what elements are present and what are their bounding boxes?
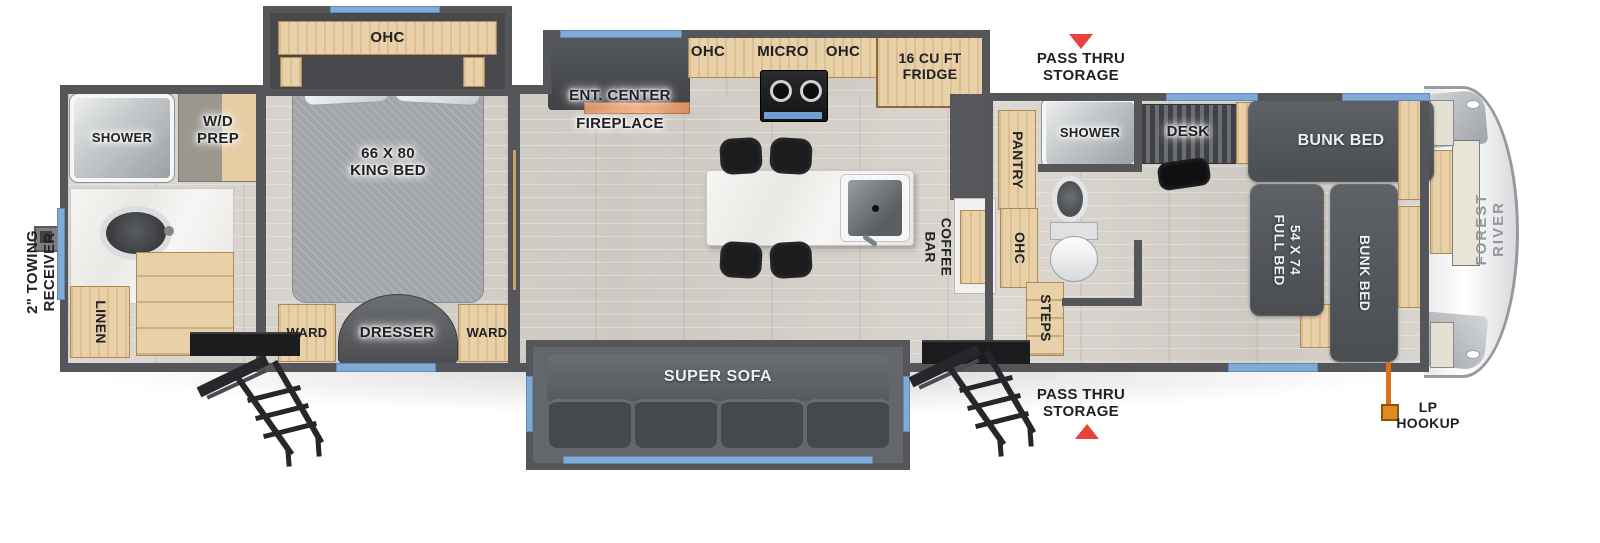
mid-bath-wall-3 [1134, 240, 1142, 304]
wall-kitchen-left [543, 30, 551, 94]
brand-label: FOREST RIVER [1474, 175, 1508, 284]
mid-ohc-label: OHC [1011, 232, 1027, 264]
king-bed-slide: OHC [263, 6, 512, 96]
pantry-label: PANTRY [1009, 131, 1025, 189]
ward-left-label: WARD [278, 304, 336, 362]
pass-thru-storage-top-label: PASS THRU STORAGE [1018, 50, 1144, 86]
bunk-window-1 [1166, 93, 1258, 101]
fridge-label: 16 CU FT FRIDGE [876, 38, 984, 96]
interior-steps-label: STEPS [1037, 294, 1053, 341]
sofa-seat-2 [635, 399, 717, 448]
wall-living-front [985, 93, 993, 363]
ohc-left-label: OHC [686, 44, 730, 60]
sofa-slide-window-bottom [563, 456, 873, 464]
full-bed-label: 54 X 74 FULL BED [1271, 214, 1302, 285]
lp-hookup-label: LP HOOKUP [1392, 398, 1464, 434]
bedroom-ohc-label: OHC [278, 21, 497, 55]
toilet-bowl [1050, 236, 1098, 282]
stool-1 [719, 137, 763, 175]
stool-3 [719, 241, 763, 279]
stove-burner-left [770, 80, 792, 102]
ent-center-window [560, 30, 682, 38]
rv-floorplan: FOREST RIVER SHOWER W/D PREP LINEN OHC 6… [0, 0, 1600, 543]
lp-line [1386, 362, 1391, 408]
bunk-bed-right-label: BUNK BED [1356, 235, 1372, 311]
stove-burner-right [800, 80, 822, 102]
ohc-right-label: OHC [821, 44, 865, 60]
king-bed-label: 66 X 80 KING BED [292, 142, 484, 184]
sofa-seat-4 [807, 399, 889, 448]
sofa-seat-3 [721, 399, 803, 448]
bedroom-door-track [513, 150, 516, 290]
pass-thru-storage-bottom-label: PASS THRU STORAGE [1018, 386, 1144, 422]
towing-receiver-label: 2" TOWING RECEIVER [25, 230, 59, 314]
bedroom-bottom-window [336, 363, 436, 372]
bunk-bed-top-label: BUNK BED [1248, 100, 1434, 182]
stool-4 [769, 241, 813, 279]
micro-label: MICRO [756, 44, 810, 60]
slide-shelf-left [280, 57, 302, 87]
stove-front-trim [764, 112, 822, 119]
entry-steps-left [196, 356, 336, 468]
cap-bolt-bottom [1466, 350, 1480, 359]
super-sofa-label: SUPER SOFA [547, 365, 889, 389]
sofa-slide-window-left [526, 376, 533, 432]
mid-bath-wall-4 [1062, 298, 1142, 306]
front-closet-panel-bottom [1430, 322, 1454, 368]
mid-bath-sink [1052, 176, 1088, 222]
bath-faucet [164, 226, 174, 236]
island-sink-drain [872, 205, 879, 212]
wd-prep-label: W/D PREP [178, 96, 258, 166]
ent-center-label: ENT. CENTER [544, 88, 696, 104]
sofa-slide: SUPER SOFA [526, 340, 910, 470]
cap-bolt-top [1466, 100, 1480, 109]
slide-shelf-right [463, 57, 485, 87]
ward-right-label: WARD [458, 304, 516, 362]
fireplace-label: FIREPLACE [544, 116, 696, 132]
rear-shower-label: SHOWER [70, 94, 174, 182]
stool-2 [769, 137, 813, 175]
linen-label: LINEN [92, 300, 108, 344]
arrow-down-icon [1069, 34, 1093, 49]
sofa-seat-1 [549, 399, 631, 448]
kitchen-return-wall [950, 94, 988, 200]
dresser-label: DRESSER [338, 318, 456, 348]
mid-shower-label: SHOWER [1042, 98, 1138, 168]
bunk-window-bottom [1228, 363, 1318, 372]
king-slide-window [330, 6, 440, 13]
arrow-up-icon [1075, 424, 1099, 439]
desk-label: DESK [1140, 122, 1236, 142]
coffee-bar-label: COFFEE BAR [922, 218, 953, 277]
